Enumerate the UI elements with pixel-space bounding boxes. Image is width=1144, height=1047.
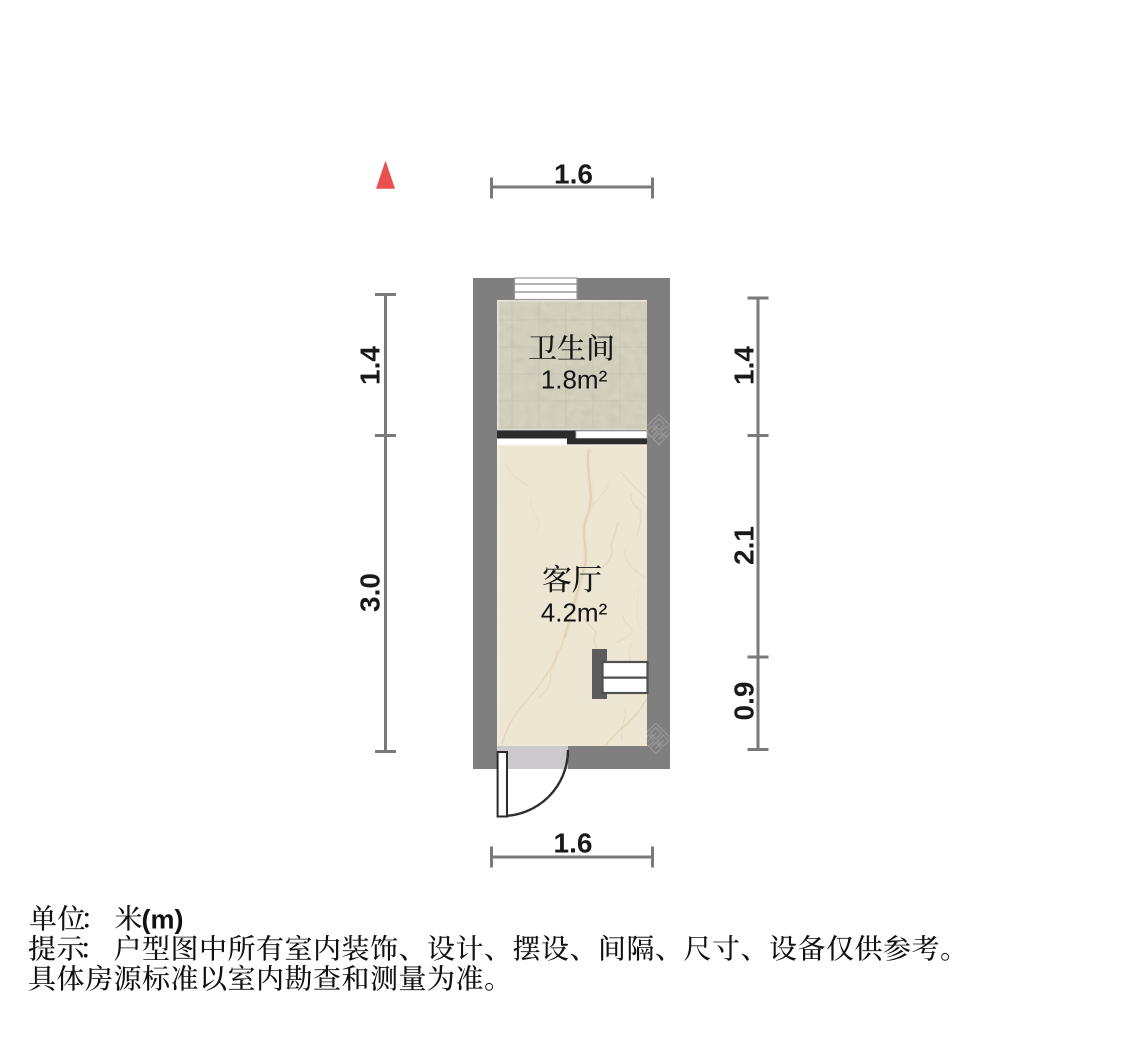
svg-text:1.6: 1.6 [554, 159, 593, 190]
svg-text:2.1: 2.1 [728, 526, 759, 565]
svg-text:3.0: 3.0 [354, 573, 385, 612]
svg-text:1.4: 1.4 [354, 346, 385, 385]
svg-text:1.6: 1.6 [554, 828, 593, 859]
svg-text:4.2m²: 4.2m² [541, 598, 608, 628]
svg-text:1.4: 1.4 [728, 346, 759, 385]
svg-text:0.9: 0.9 [728, 682, 759, 721]
svg-text:1.8m²: 1.8m² [541, 365, 608, 395]
svg-text:(m): (m) [142, 905, 184, 935]
